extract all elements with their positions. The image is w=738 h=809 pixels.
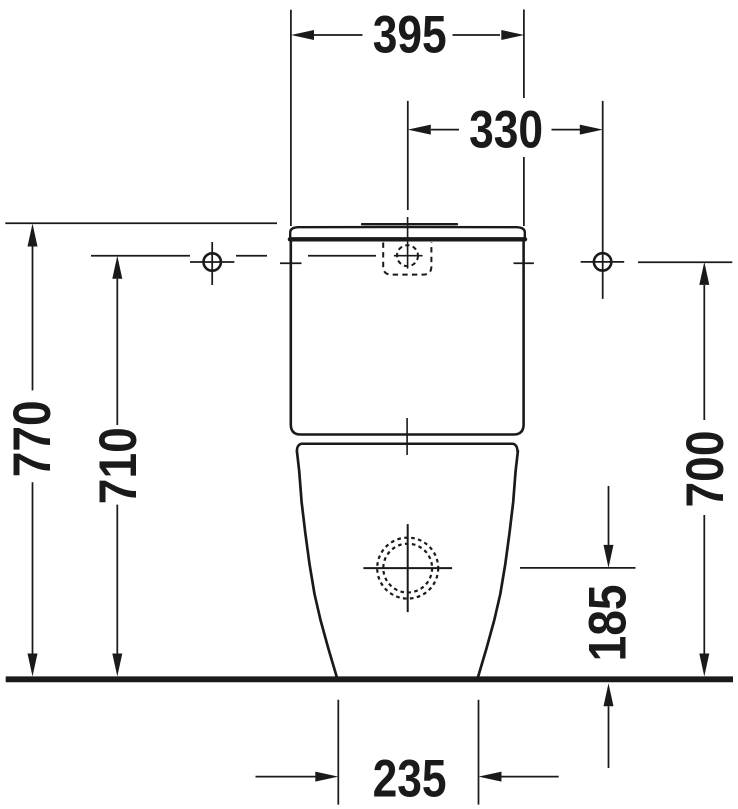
svg-text:395: 395: [373, 5, 447, 64]
svg-text:770: 770: [3, 400, 62, 477]
svg-text:710: 710: [89, 427, 148, 504]
svg-text:700: 700: [676, 431, 735, 508]
svg-text:330: 330: [469, 101, 543, 160]
svg-text:235: 235: [373, 750, 447, 809]
svg-text:185: 185: [578, 584, 637, 661]
